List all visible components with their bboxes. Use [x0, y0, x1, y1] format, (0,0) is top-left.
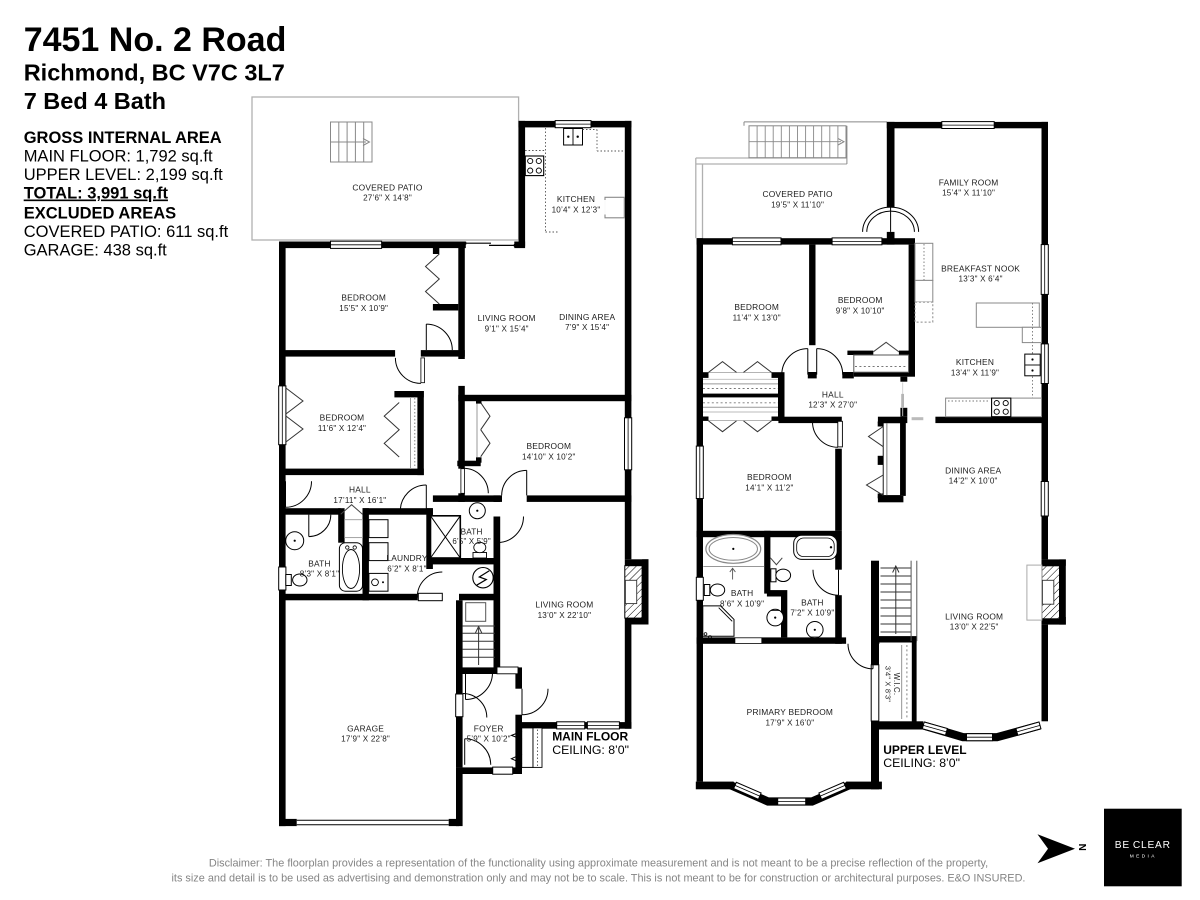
- svg-text:10’4" X 12’3": 10’4" X 12’3": [552, 206, 601, 215]
- svg-text:CEILING: 8’0": CEILING: 8’0": [552, 743, 629, 757]
- svg-text:BREAKFAST NOOK: BREAKFAST NOOK: [941, 263, 1020, 273]
- svg-text:BATH: BATH: [801, 597, 824, 607]
- svg-text:13’4" X 11’9": 13’4" X 11’9": [951, 369, 999, 378]
- svg-text:BATH: BATH: [308, 558, 331, 568]
- svg-text:MAIN FLOOR: MAIN FLOOR: [552, 730, 628, 744]
- svg-text:FAMILY ROOM: FAMILY ROOM: [939, 177, 999, 187]
- svg-text:LIVING ROOM: LIVING ROOM: [478, 313, 536, 323]
- svg-text:BATH: BATH: [461, 528, 483, 537]
- svg-text:13’0" X 22’5": 13’0" X 22’5": [950, 623, 999, 632]
- svg-text:TOTAL: 3,991 sq.ft: TOTAL: 3,991 sq.ft: [24, 185, 169, 203]
- svg-text:17’9" X 22’8": 17’9" X 22’8": [341, 735, 390, 744]
- svg-text:11’4" X 13’0": 11’4" X 13’0": [733, 313, 781, 322]
- svg-text:6’5" X 5’9": 6’5" X 5’9": [452, 537, 491, 546]
- svg-text:MEDIA: MEDIA: [1130, 853, 1157, 859]
- svg-text:7’9" X 15’4": 7’9" X 15’4": [565, 323, 609, 332]
- svg-text:HALL: HALL: [822, 389, 844, 399]
- svg-text:17’9" X 16’0": 17’9" X 16’0": [765, 718, 814, 727]
- svg-text:GARAGE: GARAGE: [347, 723, 384, 733]
- svg-text:15’5" X 10’9": 15’5" X 10’9": [339, 304, 388, 313]
- svg-text:Richmond, BC V7C 3L7: Richmond, BC V7C 3L7: [24, 60, 285, 86]
- svg-text:8’3" X 8’1": 8’3" X 8’1": [300, 570, 339, 579]
- svg-text:BEDROOM: BEDROOM: [341, 293, 386, 303]
- svg-text:COVERED PATIO: COVERED PATIO: [762, 189, 833, 199]
- svg-text:its size and detail is to be u: its size and detail is to be used as adv…: [172, 873, 1026, 885]
- svg-text:LAUNDRY: LAUNDRY: [386, 553, 427, 563]
- svg-text:14’1" X 11’2": 14’1" X 11’2": [745, 484, 793, 493]
- svg-text:KITCHEN: KITCHEN: [557, 194, 595, 204]
- svg-text:8’6" X 10’9": 8’6" X 10’9": [720, 599, 764, 608]
- svg-text:MAIN FLOOR: 1,792 sq.ft: MAIN FLOOR: 1,792 sq.ft: [24, 148, 213, 166]
- svg-text:LIVING ROOM: LIVING ROOM: [535, 600, 593, 610]
- svg-text:EXCLUDED AREAS: EXCLUDED AREAS: [24, 205, 177, 223]
- svg-text:DINING AREA: DINING AREA: [559, 312, 615, 322]
- svg-text:19’5" X 11’10": 19’5" X 11’10": [771, 201, 824, 210]
- svg-text:UPPER LEVEL: UPPER LEVEL: [883, 743, 966, 757]
- svg-text:9’1" X 15’4": 9’1" X 15’4": [485, 325, 529, 334]
- svg-text:BE CLEAR: BE CLEAR: [1115, 840, 1171, 851]
- svg-text:14’2" X 10’0": 14’2" X 10’0": [949, 477, 998, 486]
- svg-text:BEDROOM: BEDROOM: [320, 413, 365, 423]
- svg-text:COVERED PATIO: 611 sq.ft: COVERED PATIO: 611 sq.ft: [24, 223, 229, 241]
- svg-text:UPPER LEVEL: 2,199 sq.ft: UPPER LEVEL: 2,199 sq.ft: [24, 166, 223, 184]
- svg-text:KITCHEN: KITCHEN: [956, 357, 994, 367]
- svg-text:3’4" X 8’3": 3’4" X 8’3": [884, 666, 893, 702]
- svg-text:Disclaimer: The floorplan prov: Disclaimer: The floorplan provides a rep…: [209, 858, 988, 870]
- svg-text:BEDROOM: BEDROOM: [734, 302, 779, 312]
- svg-text:FOYER: FOYER: [474, 723, 504, 733]
- svg-text:LIVING ROOM: LIVING ROOM: [945, 611, 1003, 621]
- svg-text:DINING AREA: DINING AREA: [945, 465, 1001, 475]
- svg-text:9’8" X 10’10": 9’8" X 10’10": [836, 306, 885, 315]
- svg-text:BEDROOM: BEDROOM: [747, 472, 792, 482]
- svg-text:7 Bed 4 Bath: 7 Bed 4 Bath: [24, 88, 166, 114]
- svg-text:HALL: HALL: [349, 485, 371, 495]
- svg-text:PRIMARY BEDROOM: PRIMARY BEDROOM: [747, 707, 833, 717]
- svg-text:27’6" X 14’8": 27’6" X 14’8": [363, 194, 412, 203]
- svg-text:N: N: [1076, 844, 1087, 851]
- svg-text:GARAGE: 438 sq.ft: GARAGE: 438 sq.ft: [24, 242, 167, 260]
- svg-text:BEDROOM: BEDROOM: [838, 295, 883, 305]
- svg-text:7451 No. 2 Road: 7451 No. 2 Road: [24, 21, 287, 59]
- svg-text:13’0" X 22’10": 13’0" X 22’10": [538, 611, 592, 620]
- svg-text:COVERED PATIO: COVERED PATIO: [352, 182, 423, 192]
- svg-text:GROSS INTERNAL AREA: GROSS INTERNAL AREA: [24, 129, 222, 147]
- svg-text:BEDROOM: BEDROOM: [526, 441, 571, 451]
- svg-text:5’9" X 10’2": 5’9" X 10’2": [467, 735, 511, 744]
- svg-text:15’4" X 11’10": 15’4" X 11’10": [942, 189, 995, 198]
- svg-text:17’11" X 16’1": 17’11" X 16’1": [333, 496, 386, 505]
- svg-text:11’6" X 12’4": 11’6" X 12’4": [318, 424, 366, 433]
- svg-text:BATH: BATH: [731, 588, 754, 598]
- svg-text:6’2" X 8’1": 6’2" X 8’1": [387, 565, 426, 574]
- svg-text:14’10" X 10’2": 14’10" X 10’2": [522, 453, 576, 462]
- svg-text:13’3" X 6’4": 13’3" X 6’4": [959, 275, 1003, 284]
- svg-text:7’2" X 10’9": 7’2" X 10’9": [790, 609, 834, 618]
- svg-text:CEILING: 8’0": CEILING: 8’0": [883, 756, 960, 770]
- svg-text:12’3" X 27’0": 12’3" X 27’0": [808, 401, 857, 410]
